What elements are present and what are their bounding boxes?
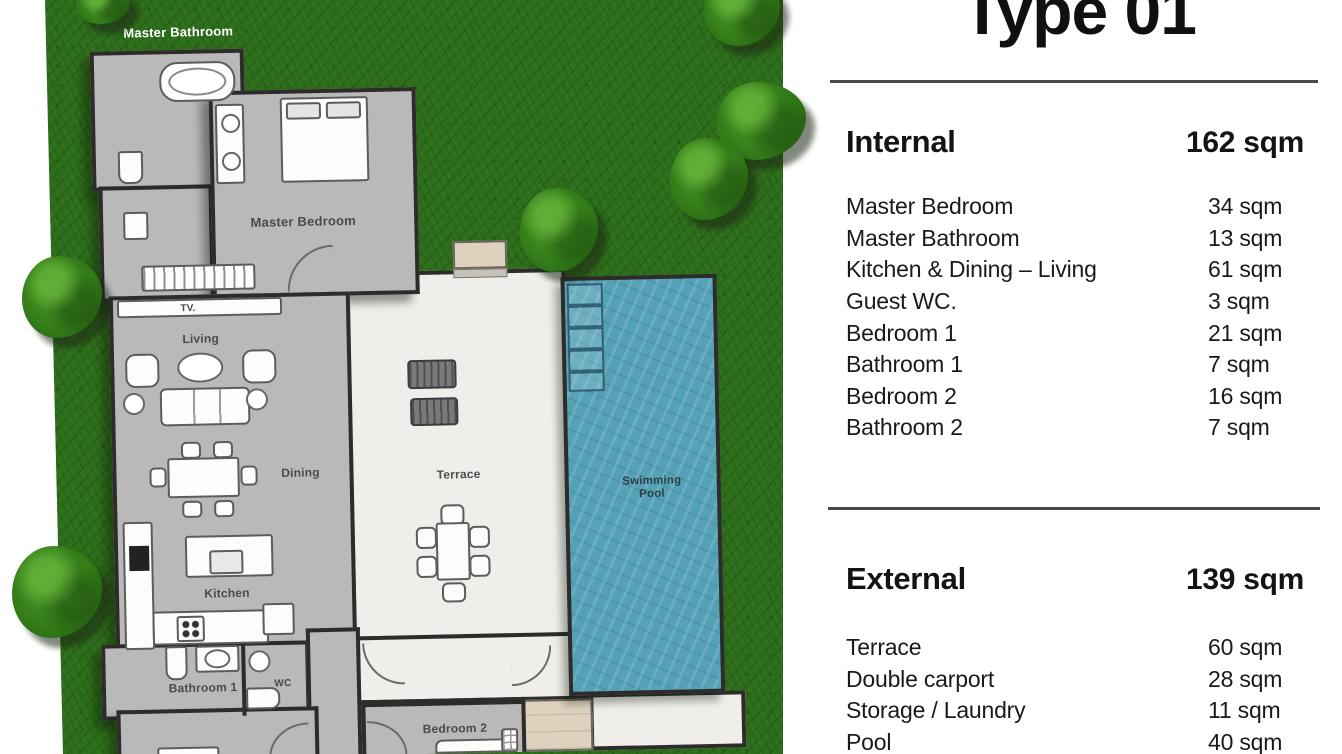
dining-chair: [182, 501, 202, 518]
internal-rows: Master Bedroom 34 sqm Master Bathroom 13…: [846, 191, 1312, 444]
pillow: [286, 102, 321, 120]
closet: [123, 212, 149, 241]
outdoor-chair: [469, 555, 490, 577]
outdoor-chair: [416, 556, 437, 578]
outdoor-chair: [469, 526, 490, 548]
label-tv: TV.: [180, 303, 195, 315]
bed-bedroom-2: [435, 738, 511, 754]
pool-steps: [568, 327, 604, 350]
label-living: Living: [182, 332, 219, 347]
dining-table: [167, 457, 240, 498]
area-row: Pool 40 sqm: [846, 727, 1312, 754]
label-dining: Dining: [281, 466, 320, 481]
internal-section-header: Internal 162 sqm: [846, 124, 1312, 160]
wardrobe: [141, 263, 256, 291]
area-row-value: 7 sqm: [1208, 351, 1312, 378]
external-rows: Terrace 60 sqm Double carport 28 sqm Sto…: [846, 632, 1312, 754]
external-total: 139 sqm: [1186, 563, 1312, 597]
divider: [828, 507, 1320, 510]
toilet: [246, 687, 280, 710]
area-row-value: 11 sqm: [1208, 697, 1312, 724]
internal-label: Internal: [846, 124, 956, 160]
page-title: Type 01: [846, 0, 1312, 49]
tv-cabinet: [117, 297, 282, 318]
internal-total: 162 sqm: [1186, 126, 1312, 160]
nightstand: [501, 728, 518, 752]
bed-bedroom-1: [157, 746, 219, 754]
pool-steps: [568, 371, 604, 392]
kitchen-counter: [122, 522, 155, 651]
dining-chair: [240, 465, 257, 485]
external-label: External: [846, 561, 966, 597]
area-row-label: Terrace: [846, 634, 1208, 661]
area-row-value: 40 sqm: [1208, 729, 1312, 754]
label-bathroom-1: Bathroom 1: [169, 681, 238, 696]
area-row-label: Storage / Laundry: [846, 697, 1208, 724]
area-row: Guest WC. 3 sqm: [846, 286, 1312, 318]
sun-lounger: [407, 359, 457, 389]
kitchen-counter: [262, 603, 295, 636]
area-row-label: Bathroom 2: [846, 414, 1208, 441]
area-row-label: Guest WC.: [846, 288, 1208, 315]
pool-steps: [567, 283, 603, 306]
dining-chair: [213, 441, 233, 458]
label-kitchen: Kitchen: [204, 587, 250, 602]
area-row-label: Kitchen & Dining – Living: [846, 256, 1208, 283]
pool-steps: [567, 305, 603, 328]
area-row-value: 34 sqm: [1208, 193, 1312, 220]
area-row-label: Pool: [846, 729, 1208, 754]
armchair: [242, 349, 277, 384]
area-row-label: Bedroom 2: [846, 383, 1208, 410]
label-master-bedroom: Master Bedroom: [250, 214, 356, 231]
area-row: Terrace 60 sqm: [846, 632, 1312, 664]
area-row-value: 28 sqm: [1208, 666, 1312, 693]
label-swimming-pool: Swimming Pool: [613, 474, 692, 502]
area-row: Bedroom 2 16 sqm: [846, 381, 1312, 413]
outdoor-chair: [442, 582, 466, 602]
label-bedroom-2: Bedroom 2: [423, 722, 488, 737]
pool-steps: [568, 349, 604, 372]
island-sink: [209, 550, 243, 575]
pillow: [326, 101, 361, 119]
label-terrace: Terrace: [437, 468, 481, 483]
sofa: [160, 387, 251, 427]
outdoor-table: [436, 522, 471, 581]
area-row: Bedroom 1 21 sqm: [846, 317, 1312, 349]
area-row: Master Bathroom 13 sqm: [846, 223, 1312, 255]
area-row: Master Bedroom 34 sqm: [846, 191, 1312, 223]
dining-chair: [181, 442, 201, 459]
screenshot-root: Master Bathroom Master Bedroom TV. Livin…: [0, 0, 1342, 754]
area-row-value: 60 sqm: [1208, 634, 1312, 661]
area-row: Kitchen & Dining – Living 61 sqm: [846, 254, 1312, 286]
area-row-value: 13 sqm: [1208, 225, 1312, 252]
label-wc: WC: [274, 678, 291, 690]
area-row-label: Master Bedroom: [846, 193, 1208, 220]
dining-chair: [149, 467, 166, 487]
stove: [176, 616, 205, 643]
info-panel: Type 01 Internal 162 sqm Master Bedroom …: [783, 0, 1342, 754]
outdoor-chair: [416, 527, 437, 549]
area-row-label: Bathroom 1: [846, 351, 1208, 378]
toilet: [118, 151, 144, 185]
area-row: Double carport 28 sqm: [846, 664, 1312, 696]
deck-tiles: [520, 698, 593, 751]
area-row-value: 16 sqm: [1208, 383, 1312, 410]
divider: [830, 80, 1318, 83]
external-section-header: External 139 sqm: [846, 561, 1312, 597]
area-row-label: Bedroom 1: [846, 320, 1208, 347]
toilet: [165, 646, 188, 680]
sun-lounger: [410, 397, 459, 426]
dining-chair: [214, 500, 234, 517]
terrace-step-edge: [453, 268, 507, 278]
kitchen-counter: [152, 609, 269, 645]
area-row-value: 61 sqm: [1208, 256, 1312, 283]
area-row: Storage / Laundry 11 sqm: [846, 695, 1312, 727]
pool-deck: [589, 690, 746, 750]
area-row: Bathroom 1 7 sqm: [846, 349, 1312, 381]
armchair: [125, 353, 160, 388]
area-row: Bathroom 2 7 sqm: [846, 412, 1312, 444]
area-row-label: Double carport: [846, 666, 1208, 693]
label-master-bathroom: Master Bathroom: [123, 24, 233, 41]
area-row-value: 7 sqm: [1208, 414, 1312, 441]
area-row-value: 21 sqm: [1208, 320, 1312, 347]
kitchen-oven: [129, 546, 150, 571]
terrace-step: [453, 240, 508, 269]
area-row-value: 3 sqm: [1208, 288, 1312, 315]
area-row-label: Master Bathroom: [846, 225, 1208, 252]
